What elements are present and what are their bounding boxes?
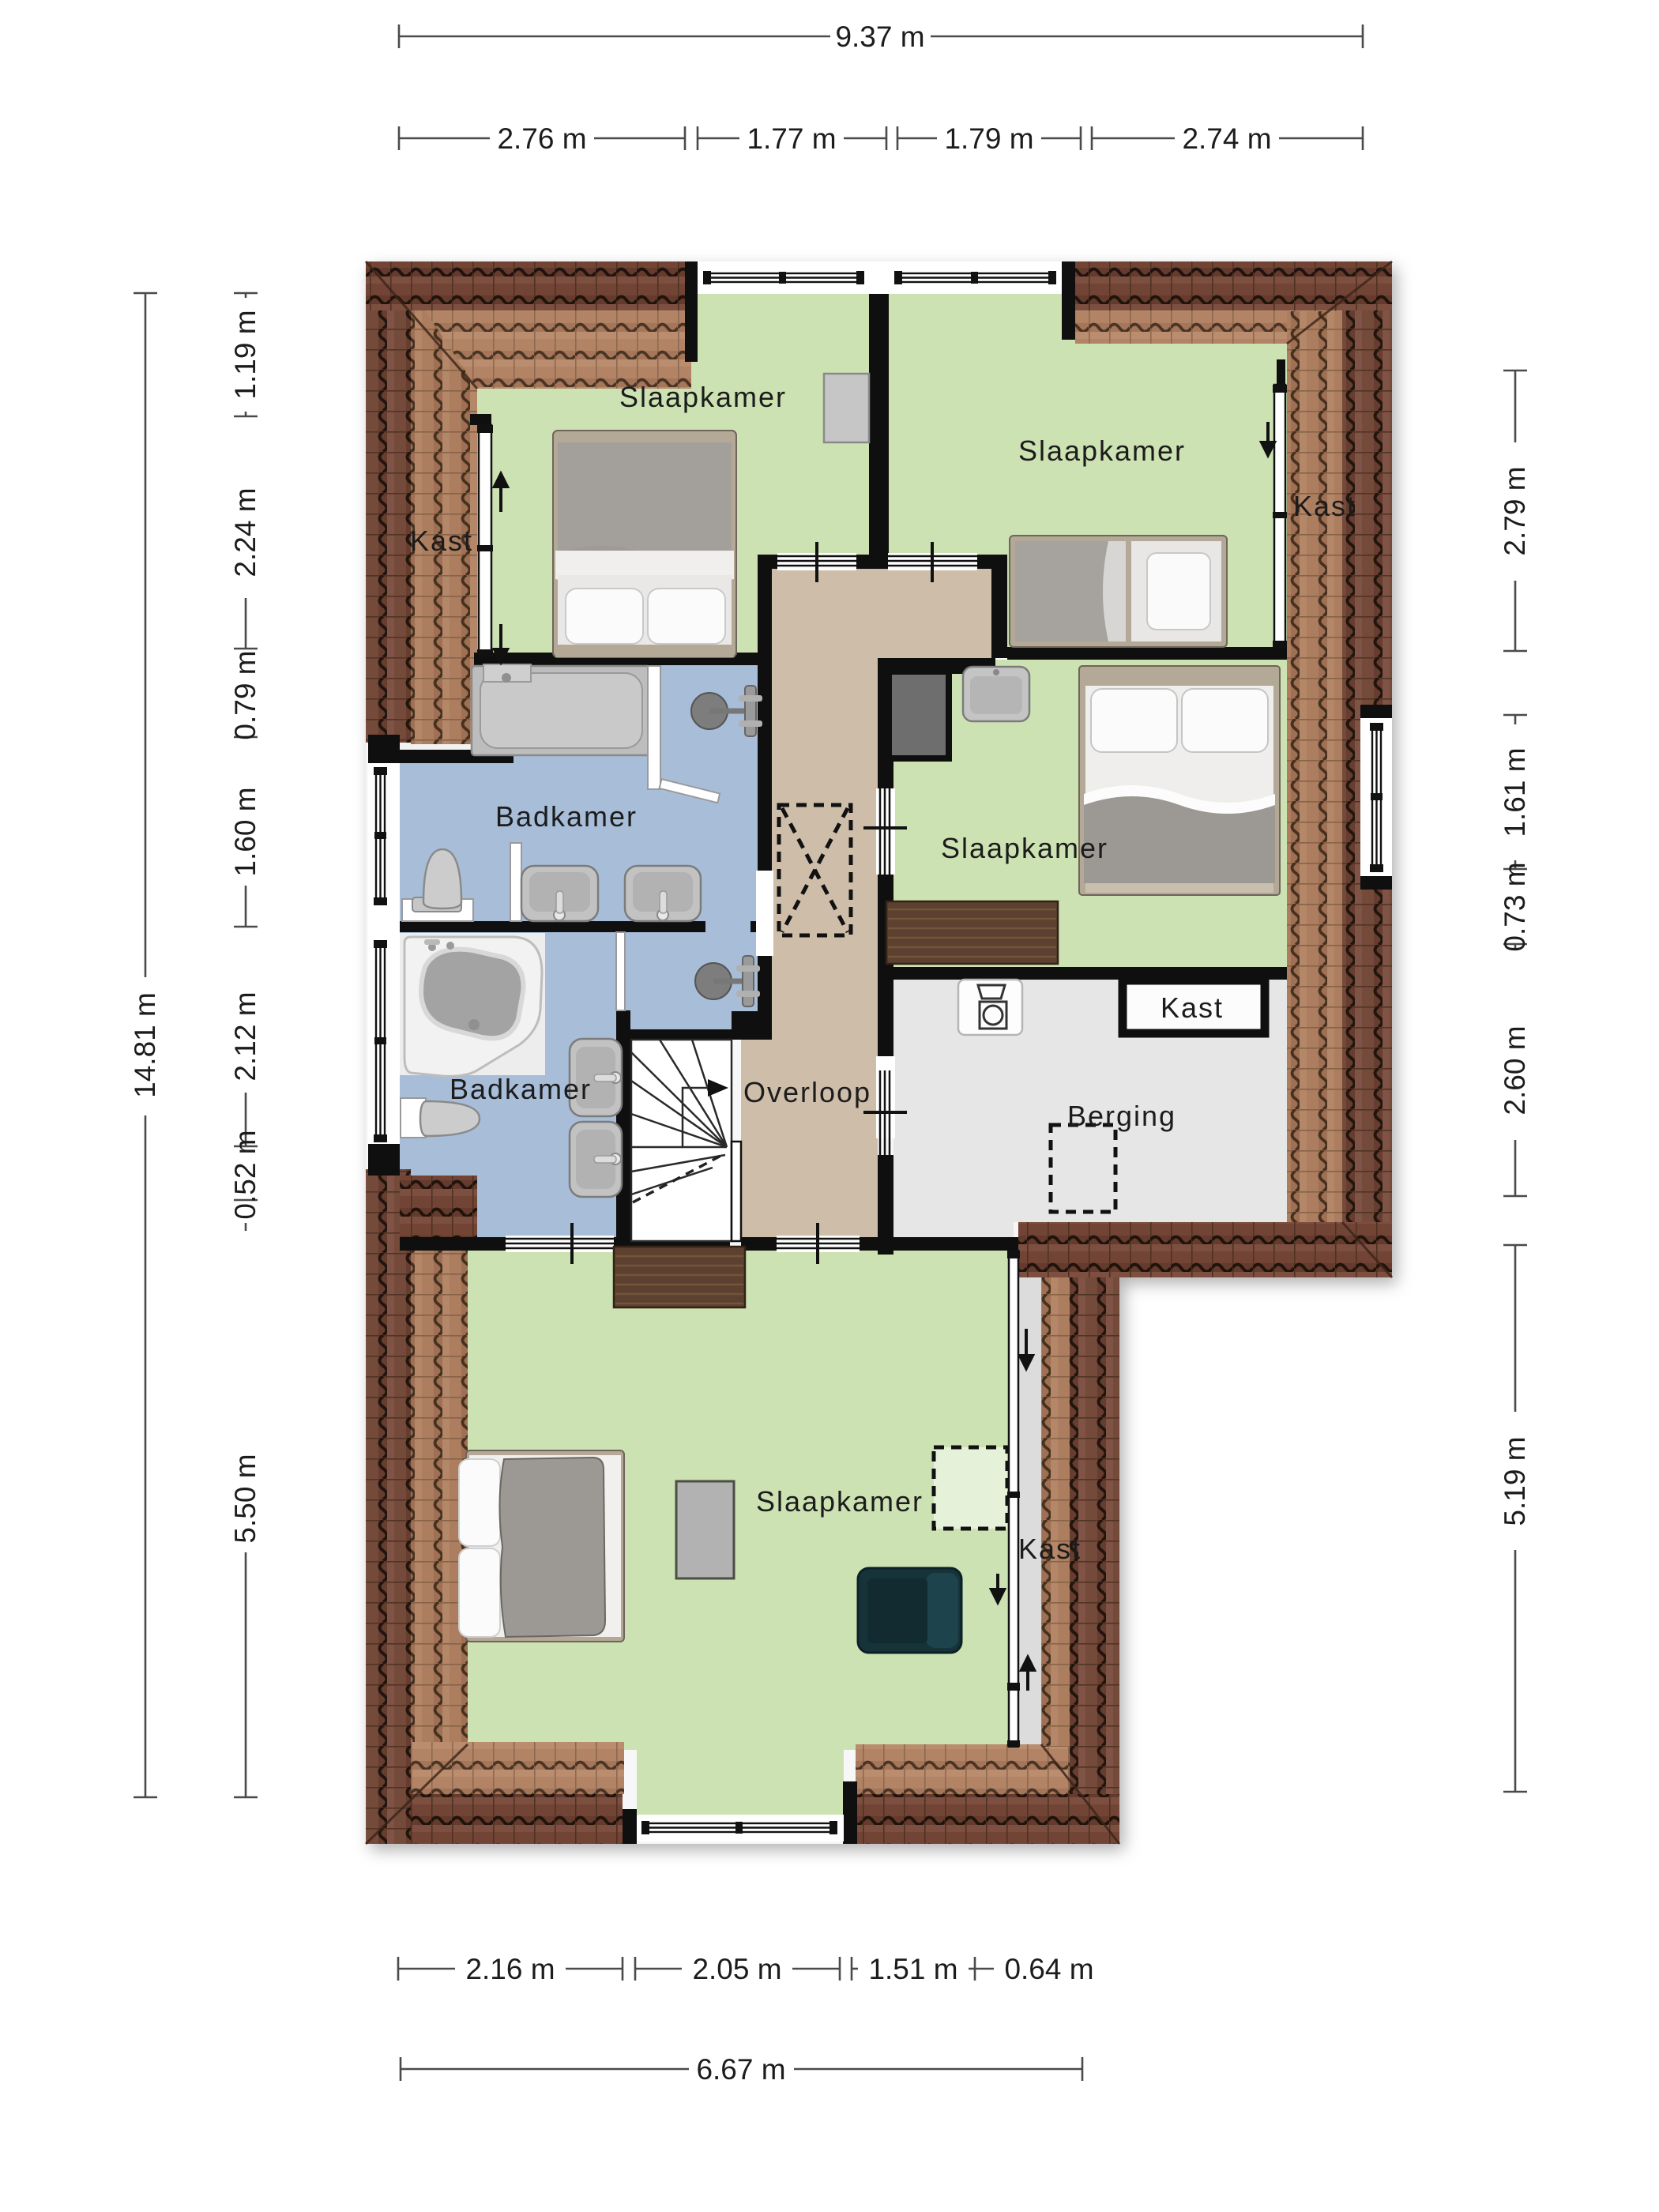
svg-text:1.19 m: 1.19 m (229, 310, 261, 399)
svg-text:6.67 m: 6.67 m (696, 2053, 785, 2086)
svg-text:Slaapkamer: Slaapkamer (1018, 434, 1186, 467)
svg-text:Slaapkamer: Slaapkamer (756, 1485, 924, 1518)
svg-text:5.19 m: 5.19 m (1499, 1436, 1531, 1525)
svg-text:Kast: Kast (410, 525, 473, 557)
svg-text:Slaapkamer: Slaapkamer (941, 832, 1108, 864)
svg-text:2.60 m: 2.60 m (1499, 1025, 1531, 1115)
svg-text:2.74 m: 2.74 m (1182, 122, 1271, 155)
svg-text:1.77 m: 1.77 m (747, 122, 836, 155)
svg-text:1.51 m: 1.51 m (868, 1953, 957, 1985)
svg-text:1.61 m: 1.61 m (1499, 747, 1531, 837)
svg-text:2.76 m: 2.76 m (497, 122, 586, 155)
svg-text:2.24 m: 2.24 m (229, 487, 261, 577)
svg-text:Overloop: Overloop (743, 1076, 871, 1108)
svg-text:Berging: Berging (1067, 1100, 1176, 1132)
svg-text:0.79 m: 0.79 m (229, 650, 261, 739)
svg-text:Badkamer: Badkamer (495, 800, 638, 833)
svg-text:14.81 m: 14.81 m (129, 992, 161, 1098)
svg-text:2.79 m: 2.79 m (1499, 466, 1531, 555)
svg-text:Kast: Kast (1161, 991, 1224, 1024)
svg-text:2.12 m: 2.12 m (229, 991, 261, 1081)
svg-text:Badkamer: Badkamer (450, 1073, 592, 1105)
svg-text:Kast: Kast (1018, 1533, 1082, 1565)
svg-text:0.64 m: 0.64 m (1004, 1953, 1093, 1985)
svg-text:0.73 m: 0.73 m (1499, 862, 1531, 951)
svg-text:1.79 m: 1.79 m (944, 122, 1033, 155)
svg-text:0.52 m: 0.52 m (229, 1130, 261, 1219)
svg-text:5.50 m: 5.50 m (229, 1454, 261, 1543)
svg-text:2.05 m: 2.05 m (692, 1953, 781, 1985)
svg-text:Kast: Kast (1293, 490, 1356, 522)
svg-text:2.16 m: 2.16 m (465, 1953, 555, 1985)
svg-text:1.60 m: 1.60 m (229, 787, 261, 876)
svg-text:9.37 m: 9.37 m (835, 21, 924, 53)
svg-text:Slaapkamer: Slaapkamer (619, 381, 787, 413)
